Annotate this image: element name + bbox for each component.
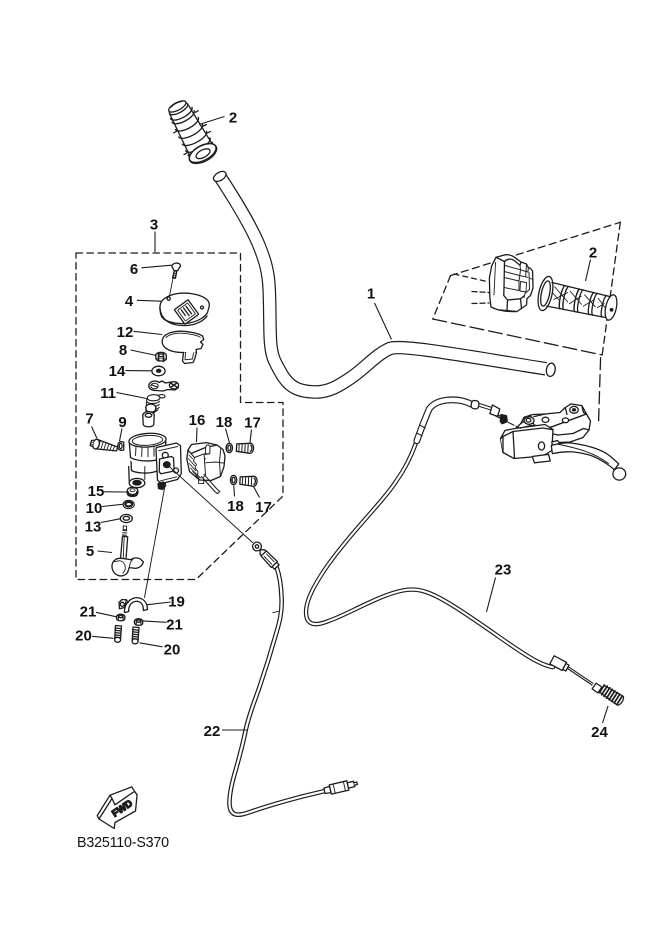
svg-text:3: 3 bbox=[150, 217, 158, 234]
svg-text:2: 2 bbox=[589, 245, 597, 262]
svg-text:16: 16 bbox=[189, 412, 206, 429]
svg-text:13: 13 bbox=[85, 519, 102, 536]
svg-text:6: 6 bbox=[130, 261, 138, 278]
svg-text:1: 1 bbox=[367, 286, 375, 303]
svg-text:18: 18 bbox=[227, 498, 244, 515]
svg-text:18: 18 bbox=[216, 414, 233, 431]
svg-text:23: 23 bbox=[495, 562, 512, 579]
svg-text:11: 11 bbox=[100, 385, 116, 402]
svg-text:7: 7 bbox=[85, 411, 93, 428]
svg-text:8: 8 bbox=[119, 342, 127, 359]
svg-text:21: 21 bbox=[166, 617, 183, 634]
svg-text:14: 14 bbox=[109, 363, 126, 380]
svg-text:22: 22 bbox=[204, 723, 221, 740]
svg-text:2: 2 bbox=[229, 110, 237, 127]
svg-text:24: 24 bbox=[591, 724, 608, 741]
svg-text:12: 12 bbox=[117, 324, 134, 341]
svg-text:17: 17 bbox=[255, 499, 272, 516]
svg-text:4: 4 bbox=[125, 293, 134, 310]
svg-text:20: 20 bbox=[75, 628, 92, 645]
svg-text:9: 9 bbox=[118, 414, 126, 431]
svg-text:21: 21 bbox=[80, 604, 97, 621]
svg-text:5: 5 bbox=[86, 543, 94, 560]
svg-text:20: 20 bbox=[164, 642, 181, 659]
svg-text:17: 17 bbox=[244, 415, 261, 432]
svg-text:19: 19 bbox=[168, 594, 185, 611]
svg-text:15: 15 bbox=[88, 483, 105, 500]
svg-text:10: 10 bbox=[86, 500, 103, 517]
svg-text:B325110-S370: B325110-S370 bbox=[77, 835, 169, 851]
